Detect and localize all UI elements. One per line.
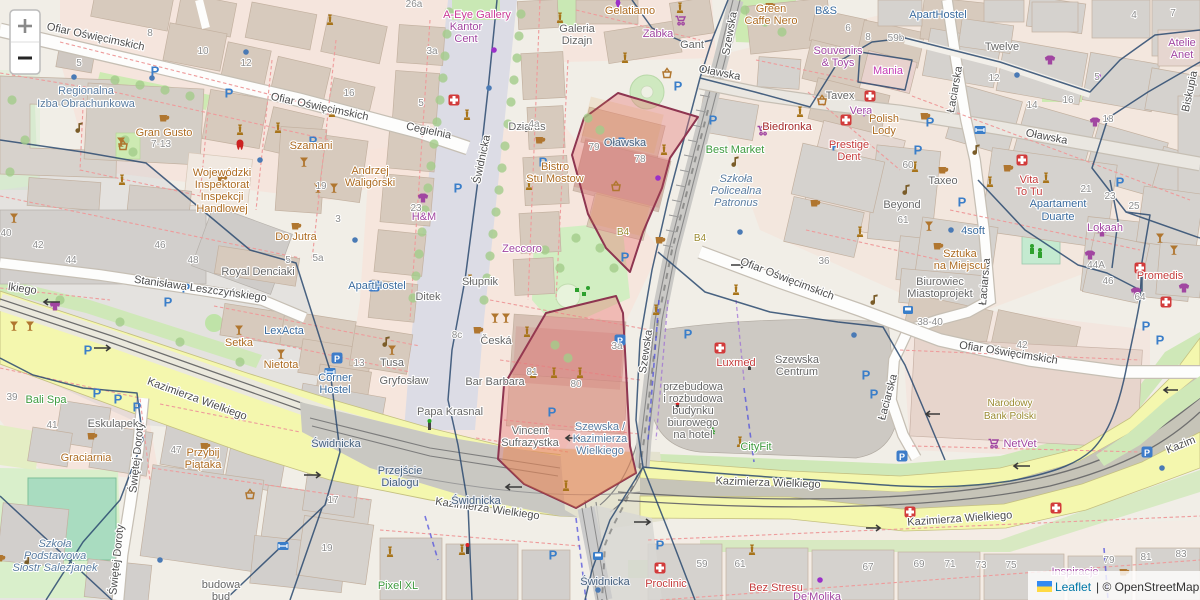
svg-text:3a: 3a: [426, 46, 438, 57]
svg-text:| © OpenStreetMap: | © OpenStreetMap: [1096, 580, 1200, 594]
svg-text:Pixel XL: Pixel XL: [378, 580, 418, 592]
svg-text:7: 7: [1170, 8, 1176, 19]
svg-text:5: 5: [76, 58, 82, 69]
svg-text:Česká: Česká: [480, 334, 512, 347]
svg-text:Taxeo: Taxeo: [928, 175, 957, 187]
svg-text:3a: 3a: [611, 341, 623, 352]
svg-text:Podstawowa: Podstawowa: [24, 550, 86, 562]
svg-text:Vita: Vita: [1020, 174, 1040, 186]
svg-text:De'Molika: De'Molika: [793, 591, 842, 600]
svg-text:na Miejscu: na Miejscu: [934, 260, 987, 272]
svg-text:61: 61: [897, 215, 909, 226]
svg-text:46: 46: [154, 240, 166, 251]
svg-text:Do Jutra: Do Jutra: [275, 231, 317, 243]
svg-text:83: 83: [1175, 549, 1187, 560]
svg-text:Bar Barbara: Bar Barbara: [465, 376, 525, 388]
svg-text:Eskulapek: Eskulapek: [88, 418, 139, 430]
svg-text:ApartHostel: ApartHostel: [909, 9, 966, 21]
svg-text:przebudowa: przebudowa: [663, 381, 724, 393]
svg-text:Świdnicka: Świdnicka: [580, 575, 630, 588]
svg-text:Świdnicka: Świdnicka: [311, 437, 361, 450]
svg-text:59b: 59b: [888, 33, 905, 44]
svg-text:Kazimierza: Kazimierza: [573, 433, 628, 445]
svg-text:i rozbudowa: i rozbudowa: [663, 393, 723, 405]
svg-text:Regionalna: Regionalna: [58, 85, 115, 97]
svg-text:39: 39: [6, 392, 18, 403]
svg-text:Siostr Salezjanek: Siostr Salezjanek: [13, 562, 98, 574]
svg-text:Polish: Polish: [869, 113, 899, 125]
svg-text:Gant: Gant: [680, 39, 704, 51]
svg-text:Promedis: Promedis: [1137, 270, 1184, 282]
svg-text:Papa Krasnal: Papa Krasnal: [417, 406, 483, 418]
svg-text:Gryfosław: Gryfosław: [380, 375, 429, 387]
svg-text:3: 3: [335, 214, 341, 225]
svg-text:Graciarnia: Graciarnia: [61, 452, 113, 464]
svg-text:Anet: Anet: [1171, 49, 1194, 61]
svg-text:Gran Gusto: Gran Gusto: [136, 127, 193, 139]
svg-text:Ditek: Ditek: [415, 291, 441, 303]
svg-text:Zeccoro: Zeccoro: [502, 243, 542, 255]
svg-text:na hotel: na hotel: [673, 429, 712, 441]
svg-text:38-40: 38-40: [917, 317, 943, 328]
svg-text:61: 61: [734, 559, 746, 570]
svg-text:48: 48: [187, 255, 199, 266]
svg-text:Biedronka: Biedronka: [762, 121, 812, 133]
svg-text:Hostel: Hostel: [319, 384, 350, 396]
svg-text:Sufrazystka: Sufrazystka: [501, 437, 559, 449]
svg-text:A-Eye Gallery: A-Eye Gallery: [443, 9, 511, 21]
svg-text:budynku: budynku: [672, 405, 714, 417]
svg-text:Galeria: Galeria: [559, 23, 595, 35]
svg-text:Inspektorat: Inspektorat: [195, 179, 249, 191]
svg-text:Szkoła: Szkoła: [38, 538, 71, 550]
svg-text:10: 10: [197, 46, 209, 57]
svg-text:Piątaka: Piątaka: [185, 459, 223, 471]
svg-text:B&S: B&S: [815, 5, 837, 17]
svg-text:Bistro: Bistro: [541, 161, 569, 173]
svg-text:Tusa: Tusa: [380, 357, 405, 369]
svg-text:4soft: 4soft: [961, 225, 985, 237]
svg-text:5: 5: [418, 98, 424, 109]
svg-text:Mania: Mania: [873, 65, 904, 77]
svg-text:Andrzej: Andrzej: [351, 165, 388, 177]
svg-text:14: 14: [1026, 100, 1038, 111]
svg-text:CityFit: CityFit: [740, 441, 771, 453]
svg-text:Best Market: Best Market: [706, 144, 765, 156]
svg-text:5: 5: [285, 255, 291, 266]
svg-text:81: 81: [526, 367, 538, 378]
svg-text:Waligórski: Waligórski: [345, 177, 395, 189]
svg-text:36: 36: [818, 256, 830, 267]
svg-text:67: 67: [862, 562, 874, 573]
svg-text:Nietota: Nietota: [264, 359, 300, 371]
svg-text:69: 69: [913, 559, 925, 570]
svg-text:Souvenirs: Souvenirs: [814, 45, 863, 57]
svg-text:Dent: Dent: [837, 151, 860, 163]
svg-text:79: 79: [1103, 555, 1115, 566]
svg-text:Royal Denciaki: Royal Denciaki: [221, 266, 294, 278]
svg-text:42: 42: [32, 240, 44, 251]
svg-text:Szewska /: Szewska /: [575, 421, 626, 433]
svg-text:60: 60: [902, 160, 914, 171]
svg-text:budowa: budowa: [202, 579, 241, 591]
svg-text:Apartament: Apartament: [1030, 198, 1087, 210]
svg-text:5: 5: [1094, 72, 1100, 83]
svg-text:Centrum: Centrum: [776, 366, 818, 378]
svg-text:Wielkiego: Wielkiego: [576, 445, 624, 457]
svg-text:71: 71: [944, 559, 956, 570]
svg-text:& Toys: & Toys: [822, 57, 855, 69]
svg-text:Miastoprojekt: Miastoprojekt: [907, 288, 972, 300]
svg-text:Proclinic: Proclinic: [645, 578, 687, 590]
svg-text:12: 12: [240, 58, 252, 69]
svg-text:59: 59: [696, 559, 708, 570]
svg-text:8c: 8c: [452, 330, 463, 341]
svg-text:42: 42: [1016, 340, 1028, 351]
svg-text:16: 16: [343, 88, 355, 99]
svg-text:Szkoła: Szkoła: [719, 173, 752, 185]
svg-text:Green: Green: [756, 3, 787, 15]
svg-text:21: 21: [1080, 184, 1092, 195]
svg-text:Atelie: Atelie: [1168, 37, 1196, 49]
svg-text:Oławska: Oławska: [604, 137, 647, 149]
svg-text:B4: B4: [694, 233, 707, 244]
svg-text:bud: bud: [212, 591, 230, 600]
svg-text:NetVet: NetVet: [1003, 438, 1036, 450]
svg-text:Słupnik: Słupnik: [462, 276, 499, 288]
svg-text:25: 25: [1128, 201, 1140, 212]
svg-text:Duarte: Duarte: [1041, 211, 1074, 223]
svg-text:Narodowy: Narodowy: [987, 398, 1032, 409]
svg-text:Prestige: Prestige: [829, 139, 869, 151]
svg-text:Bank Polski: Bank Polski: [984, 411, 1036, 422]
svg-text:46: 46: [1102, 276, 1114, 287]
svg-text:Handlowej: Handlowej: [196, 203, 247, 215]
svg-text:13: 13: [353, 358, 365, 369]
svg-text:Przejście: Przejście: [378, 465, 423, 477]
svg-text:73: 73: [975, 560, 987, 571]
svg-text:Biurowiec: Biurowiec: [916, 276, 964, 288]
svg-text:78: 78: [634, 154, 646, 165]
svg-text:16: 16: [1062, 95, 1074, 106]
svg-text:Corner: Corner: [318, 372, 352, 384]
svg-text:4a: 4a: [528, 119, 540, 130]
svg-text:biurowego: biurowego: [668, 417, 719, 429]
svg-text:7-13: 7-13: [151, 139, 171, 150]
svg-text:Przybij: Przybij: [186, 447, 219, 459]
svg-text:Cent: Cent: [454, 33, 477, 45]
svg-text:Szewska: Szewska: [775, 354, 820, 366]
svg-text:75: 75: [1005, 560, 1017, 571]
svg-text:Luxmed: Luxmed: [716, 357, 755, 369]
svg-text:ApartHostel: ApartHostel: [348, 280, 405, 292]
svg-text:Lokaah: Lokaah: [1087, 222, 1123, 234]
svg-text:Inspekcji: Inspekcji: [201, 191, 244, 203]
svg-text:Kantor: Kantor: [450, 21, 483, 33]
svg-text:26a: 26a: [406, 0, 423, 10]
svg-text:4: 4: [1131, 10, 1137, 21]
svg-text:Dialogu: Dialogu: [381, 477, 418, 489]
svg-text:5a: 5a: [312, 253, 324, 264]
svg-text:17: 17: [327, 495, 339, 506]
svg-text:12: 12: [988, 73, 1000, 84]
svg-text:Stu Mostow: Stu Mostow: [526, 173, 584, 185]
svg-text:23: 23: [410, 203, 422, 214]
svg-text:Twelve: Twelve: [985, 41, 1019, 53]
svg-text:Świdnicka: Świdnicka: [451, 494, 501, 507]
svg-text:Caffe Nero: Caffe Nero: [745, 15, 798, 27]
svg-text:19: 19: [321, 543, 333, 554]
svg-text:Tavex: Tavex: [826, 90, 855, 102]
svg-text:64: 64: [1134, 292, 1146, 303]
svg-text:41: 41: [46, 420, 58, 431]
svg-text:Gelatiamo: Gelatiamo: [605, 5, 655, 17]
svg-text:Setka: Setka: [225, 337, 254, 349]
svg-text:40: 40: [0, 228, 12, 239]
svg-text:80: 80: [570, 379, 582, 390]
svg-text:LexActa: LexActa: [264, 325, 305, 337]
svg-text:19: 19: [315, 181, 327, 192]
svg-text:18: 18: [1102, 114, 1114, 125]
svg-text:47: 47: [170, 445, 182, 456]
svg-text:Dizajn: Dizajn: [562, 35, 593, 47]
svg-text:Bali Spa: Bali Spa: [26, 394, 68, 406]
svg-text:Leaflet: Leaflet: [1055, 580, 1092, 594]
svg-text:Dziarus: Dziarus: [508, 121, 546, 133]
svg-text:Sztuka: Sztuka: [943, 248, 978, 260]
svg-text:Wojewódzki: Wojewódzki: [193, 167, 252, 179]
svg-text:8: 8: [865, 32, 871, 43]
svg-text:Szamani: Szamani: [290, 140, 333, 152]
svg-text:To Tu: To Tu: [1016, 186, 1043, 198]
svg-text:Policealna: Policealna: [711, 185, 762, 197]
svg-text:Beyond: Beyond: [883, 199, 920, 211]
svg-text:6: 6: [845, 23, 851, 34]
svg-text:B4: B4: [617, 227, 630, 238]
svg-text:Zabka: Zabka: [643, 28, 674, 40]
svg-text:Vincent: Vincent: [512, 425, 549, 437]
svg-text:23: 23: [1104, 191, 1116, 202]
svg-text:Patronus: Patronus: [714, 197, 759, 209]
svg-text:Izba Obrachunkowa: Izba Obrachunkowa: [37, 98, 136, 110]
svg-text:8: 8: [147, 28, 153, 39]
svg-text:44A: 44A: [1087, 260, 1105, 271]
svg-text:44: 44: [65, 255, 77, 266]
svg-text:81: 81: [1140, 552, 1152, 563]
svg-text:79: 79: [588, 142, 600, 153]
svg-text:Lody: Lody: [872, 125, 896, 137]
